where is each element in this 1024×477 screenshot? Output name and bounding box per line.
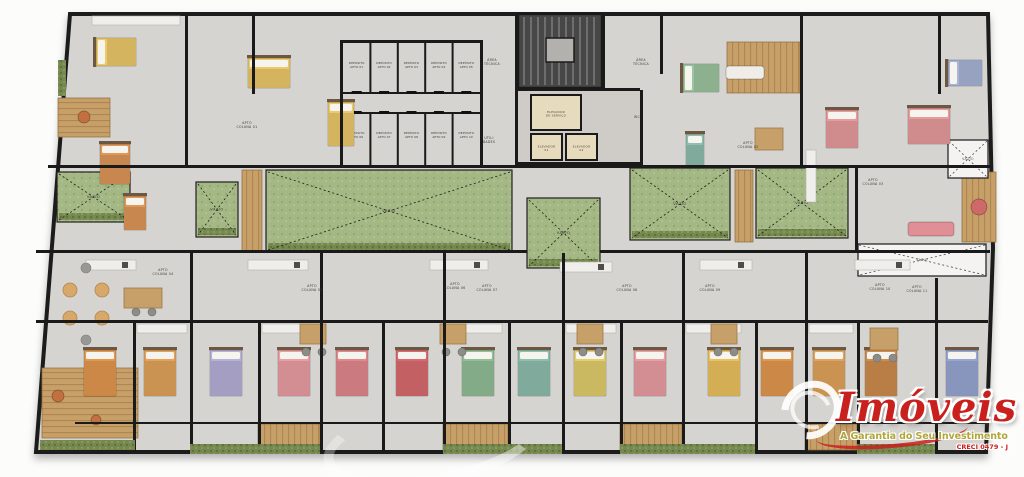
sofa — [726, 66, 764, 79]
hedge-planter — [40, 440, 135, 450]
bed-headboard — [93, 37, 96, 67]
bed-blanket — [125, 207, 145, 229]
room-label-line: COLUNA 03 — [862, 182, 883, 186]
room-label-line: COLUNA 04 — [152, 272, 173, 276]
round-table — [78, 111, 90, 123]
chair — [873, 354, 881, 362]
bed-blanket — [959, 61, 981, 85]
room-label-line: TÉCNICA — [483, 61, 501, 66]
chair — [730, 348, 738, 356]
hedge-planter — [58, 60, 66, 96]
room-label-line: COLUNA 11 — [906, 289, 927, 293]
bed-pillow — [250, 60, 288, 67]
wall — [190, 253, 193, 452]
storage-divider-wall — [452, 43, 454, 92]
room-label-line: APTO 10 — [460, 135, 473, 139]
room-label-line: APTO 03 — [405, 65, 418, 69]
cooktop — [122, 262, 128, 268]
chair — [132, 308, 140, 316]
wall — [258, 322, 261, 452]
storage-door — [407, 111, 417, 114]
bed-pillow — [763, 352, 791, 359]
bed-blanket — [694, 65, 718, 91]
storage-divider-wall — [369, 114, 371, 165]
storage-door — [379, 111, 389, 114]
storage-divider-wall — [369, 43, 371, 92]
courtyard: VAZIO — [266, 170, 512, 252]
bed-pillow — [910, 110, 948, 117]
room-label: DEPÓSITOAPTO 05 — [458, 60, 474, 69]
staircase — [518, 14, 602, 88]
round-table — [971, 199, 987, 215]
bed — [395, 347, 429, 396]
bed-blanket — [279, 361, 309, 395]
room-label: DEPÓSITOAPTO 10 — [458, 130, 474, 139]
bed-headboard — [680, 63, 683, 93]
chair — [579, 348, 587, 356]
bed — [945, 59, 982, 87]
room-label-line: DADES — [483, 140, 496, 144]
bed-blanket — [85, 361, 115, 395]
bed-headboard — [99, 141, 131, 144]
wall — [36, 320, 988, 323]
chair — [889, 354, 897, 362]
sofa — [908, 222, 954, 236]
dining-table — [577, 324, 603, 344]
wall — [620, 322, 623, 452]
bed-pillow — [948, 352, 976, 359]
bed-headboard — [633, 347, 667, 350]
bed-blanket — [709, 361, 739, 395]
bed-headboard — [825, 107, 859, 110]
bed — [335, 347, 369, 396]
bed-pillow — [815, 352, 843, 359]
dining-table — [870, 328, 898, 350]
wall — [48, 165, 990, 168]
bed-headboard — [209, 347, 243, 350]
wall — [682, 253, 685, 452]
bed-blanket — [145, 361, 175, 395]
bed-pillow — [338, 352, 366, 359]
room-label: VAZIO — [916, 258, 928, 262]
bed-pillow — [146, 352, 174, 359]
kitchen-counter — [560, 262, 612, 272]
storage-divider-wall — [424, 114, 426, 165]
storage-divider-wall — [424, 43, 426, 92]
bed-blanket — [635, 361, 665, 395]
bed — [633, 347, 667, 396]
cooktop — [738, 262, 744, 268]
dining-table — [711, 324, 737, 344]
room-label-line: APTO 04 — [432, 65, 445, 69]
brand-watermark: Imóveis A Garantia do Seu Investimento C… — [782, 388, 1016, 454]
bed-pillow — [86, 352, 114, 359]
bed-pillow — [212, 352, 240, 359]
bed-pillow — [464, 352, 492, 359]
chair — [302, 348, 310, 356]
room-label-line: COLUNA 06 — [444, 286, 465, 290]
pouf — [81, 335, 91, 345]
room-label: DEPÓSITOAPTO 03 — [404, 60, 420, 69]
courtyard-hedge — [198, 228, 236, 235]
chair — [714, 348, 722, 356]
room-label-line: APTO 07 — [378, 135, 391, 139]
wall — [800, 14, 803, 168]
wall — [562, 253, 565, 452]
wall — [518, 88, 640, 91]
bed — [680, 63, 719, 93]
round-table — [52, 390, 64, 402]
bed-headboard — [760, 347, 794, 350]
bed — [93, 37, 136, 67]
hedge-planter — [620, 444, 755, 454]
chair — [595, 348, 603, 356]
room-label-line: VAZIO — [87, 195, 101, 199]
bed-pillow — [688, 136, 702, 143]
room-label-line: VAZIO — [557, 231, 571, 235]
storage-door — [352, 91, 362, 94]
bed — [461, 347, 495, 396]
room-label-line: VAZIO — [962, 157, 974, 161]
room-label: VAZIO — [382, 209, 396, 213]
bed-blanket — [827, 121, 857, 147]
courtyard: VAZIO — [630, 168, 730, 240]
room-label-line: VAZIO — [210, 208, 224, 212]
room-label-line: APTO 08 — [405, 135, 418, 139]
bed-pillow — [520, 352, 548, 359]
storage-door — [461, 111, 471, 114]
kitchen-counter — [806, 150, 816, 202]
chair — [148, 308, 156, 316]
wall — [133, 322, 136, 452]
courtyard-hedge — [59, 213, 128, 220]
room-label-line: 01 — [544, 148, 548, 152]
room-label: DEPÓSITOAPTO 02 — [376, 60, 392, 69]
bed-pillow — [636, 352, 664, 359]
wall — [480, 40, 483, 168]
wall — [320, 253, 323, 452]
wall — [515, 14, 518, 165]
room-label-line: COLUNA 08 — [616, 288, 637, 292]
courtyard-hedge — [268, 243, 510, 250]
storage-divider-wall — [397, 43, 399, 92]
wall — [602, 14, 605, 91]
bed-blanket — [211, 361, 241, 395]
bed — [123, 193, 147, 230]
room-label-line: VAZIO — [382, 209, 396, 213]
storage-door — [434, 91, 444, 94]
lounge-chair — [63, 283, 77, 297]
room-label: ELEVADORDE SERVIÇO — [546, 110, 567, 118]
bed-pillow — [98, 40, 105, 64]
kitchen-counter — [92, 16, 180, 25]
room-label: DEPÓSITOAPTO 01 — [349, 60, 365, 69]
kitchen-counter — [809, 324, 853, 333]
storage-divider-wall — [397, 114, 399, 165]
bed-headboard — [517, 347, 551, 350]
brand-name: Imóveis — [836, 388, 1017, 428]
cooktop — [598, 264, 604, 270]
storage-door — [434, 111, 444, 114]
wall — [36, 250, 527, 253]
cooktop — [474, 262, 480, 268]
bed — [685, 131, 705, 168]
bed-pillow — [828, 112, 856, 119]
storage-door — [379, 91, 389, 94]
room-label-line: DE SERVIÇO — [546, 114, 567, 118]
cooktop — [294, 262, 300, 268]
wood-deck — [735, 170, 753, 242]
room-label-line: WC — [634, 115, 640, 119]
room-label: DEPÓSITOAPTO 04 — [431, 60, 447, 69]
bed-blanket — [337, 361, 367, 395]
bed — [517, 347, 551, 396]
room-label-line: COLUNA 07 — [476, 288, 497, 292]
bed — [99, 141, 131, 184]
bed-headboard — [945, 347, 979, 350]
wall — [252, 14, 255, 94]
cooktop — [896, 262, 902, 268]
room-label: WC — [634, 115, 640, 119]
bed — [83, 347, 117, 396]
bed-blanket — [107, 39, 135, 65]
elevator-room: ELEVADORDE SERVIÇO — [531, 95, 581, 130]
bed-pillow — [685, 66, 692, 90]
room-label: DEPÓSITOAPTO 07 — [376, 130, 392, 139]
hedge-planter — [190, 444, 320, 454]
bed-headboard — [945, 59, 948, 87]
bed-headboard — [907, 105, 951, 108]
room-label-line: VAZIO — [673, 202, 687, 206]
bed-headboard — [335, 347, 369, 350]
bed-headboard — [395, 347, 429, 350]
bed-blanket — [519, 361, 549, 395]
bed — [825, 107, 859, 148]
bed-headboard — [685, 131, 705, 134]
bed-blanket — [909, 119, 949, 143]
bed-headboard — [83, 347, 117, 350]
room-label-line: TÉCNICA — [632, 61, 650, 66]
bed-blanket — [575, 361, 605, 395]
bed-headboard — [812, 347, 846, 350]
lounge-chair — [95, 283, 109, 297]
kitchen-counter — [137, 324, 187, 333]
bed — [209, 347, 243, 396]
bed-pillow — [950, 62, 957, 84]
bed-pillow — [398, 352, 426, 359]
storage-door — [461, 91, 471, 94]
chair — [458, 348, 466, 356]
storage-divider-wall — [452, 114, 454, 165]
white-void: VAZIO — [948, 140, 988, 178]
kitchen-counter — [700, 260, 752, 270]
brand-tagline: A Garantia do Seu Investimento — [840, 431, 1008, 442]
room-label: DEPÓSITOAPTO 09 — [431, 130, 447, 139]
kitchen-counter — [86, 260, 136, 270]
brand-license: CRECI 0479 - J — [957, 443, 1008, 451]
room-label: UTILIDADES — [483, 136, 496, 144]
room-label-line: COLUNA 10 — [869, 287, 890, 291]
room-label-line: APTO 01 — [350, 65, 363, 69]
elevator-room: ELEVADOR02 — [566, 134, 597, 160]
bed-blanket — [101, 155, 129, 183]
room-label-line: COLUNA 02 — [737, 145, 758, 149]
wall — [600, 250, 990, 253]
bed-headboard — [143, 347, 177, 350]
floorplan-stage: VAZIOVAZIOVAZIOVAZIOVAZIOVAZIOVAZIOVAZIO… — [0, 0, 1024, 477]
room-label-line: COLUNA 01 — [236, 125, 257, 129]
bed-blanket — [687, 145, 703, 167]
wall — [340, 40, 343, 168]
bed-headboard — [461, 347, 495, 350]
room-label-line: 02 — [579, 148, 583, 152]
bed-headboard — [123, 193, 147, 196]
stair-landing — [546, 38, 574, 62]
dining-table — [124, 288, 162, 308]
bed-blanket — [397, 361, 427, 395]
wall — [660, 14, 663, 74]
wall — [755, 322, 758, 452]
courtyard-hedge — [632, 231, 728, 238]
bed — [907, 105, 951, 144]
room-label-line: COLUNA 09 — [699, 288, 720, 292]
bed-pillow — [102, 146, 128, 153]
room-label-line: VAZIO — [916, 258, 928, 262]
dining-table — [755, 128, 783, 150]
bed — [143, 347, 177, 396]
pouf — [81, 263, 91, 273]
room-label-line: APTO 09 — [432, 135, 445, 139]
room-label-line: COLUNA 05 — [301, 288, 322, 292]
wood-deck — [242, 170, 262, 252]
room-label-line: APTO 05 — [460, 65, 473, 69]
room-label-line: APTO 02 — [378, 65, 391, 69]
wall — [518, 162, 640, 165]
room-label: VAZIO — [557, 231, 571, 235]
room-label: DEPÓSITOAPTO 08 — [404, 130, 420, 139]
courtyard-hedge — [758, 229, 846, 236]
wall — [938, 14, 941, 94]
room-label: VAZIO — [962, 157, 974, 161]
bed-pillow — [126, 198, 144, 205]
storage-door — [407, 91, 417, 94]
wall — [185, 14, 188, 168]
wall — [340, 40, 480, 43]
wall — [855, 165, 858, 253]
room-label: VAZIO — [87, 195, 101, 199]
room-label: VAZIO — [210, 208, 224, 212]
courtyard: VAZIO — [756, 168, 848, 238]
room-label: VAZIO — [673, 202, 687, 206]
wall — [640, 90, 643, 165]
bed-blanket — [463, 361, 493, 395]
elevator-room: ELEVADOR01 — [531, 134, 562, 160]
courtyard: VAZIO — [196, 182, 238, 237]
